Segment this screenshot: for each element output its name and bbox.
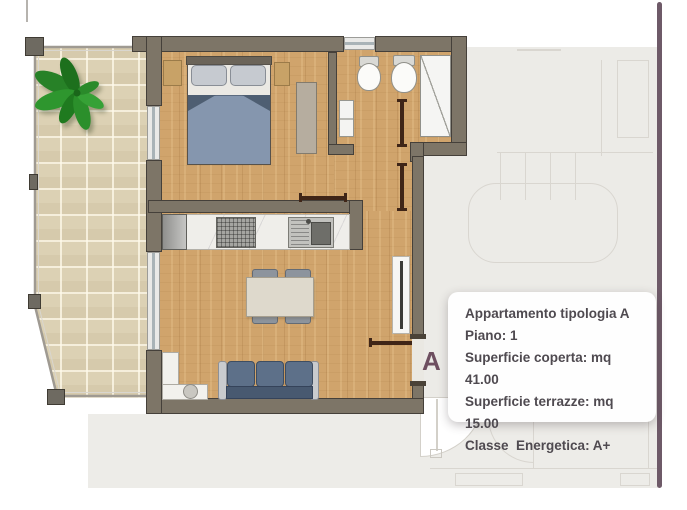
faucet — [306, 219, 311, 224]
sofa — [218, 361, 319, 400]
fixture-bowl — [357, 63, 381, 91]
door-leaf — [371, 341, 412, 345]
wall-segment — [148, 398, 424, 414]
window — [344, 37, 375, 50]
bed-pillow — [191, 65, 227, 86]
fridge — [162, 214, 187, 250]
info-card: Appartamento tipologia A Piano: 1 Superf… — [448, 292, 656, 422]
page-edge-line — [657, 2, 662, 488]
wall-segment — [412, 156, 424, 338]
info-card-line-coperta: Superficie coperta: mq 41.00 — [465, 347, 646, 391]
door-leaf — [400, 165, 404, 210]
info-card-title: Appartamento tipologia A — [465, 303, 646, 325]
sofa-base — [226, 386, 313, 399]
sink-basin — [311, 222, 331, 245]
page-tick-mark — [26, 0, 28, 22]
info-card-line-piano: Piano: 1 — [465, 325, 646, 347]
door-hinge — [344, 193, 347, 202]
wardrobe — [296, 82, 317, 154]
railing-post — [29, 174, 38, 190]
wall-segment — [132, 36, 344, 52]
dining-table — [246, 277, 314, 317]
info-card-line-classe: Classe Energetica: A+ — [465, 435, 646, 457]
window — [147, 252, 160, 350]
door-jamb — [410, 381, 426, 386]
radiator-divider — [340, 118, 353, 120]
wall-segment — [328, 52, 337, 149]
radiator-line — [400, 261, 403, 329]
wall-segment — [146, 36, 162, 106]
bidet-icon — [356, 56, 382, 92]
railing-post — [47, 389, 65, 405]
sink-drainer — [291, 220, 309, 245]
radiator — [339, 100, 354, 137]
sink — [288, 217, 334, 248]
nightstand — [163, 60, 182, 86]
wall-segment — [328, 144, 354, 155]
bed-duvet — [188, 95, 270, 164]
door-hinge — [397, 144, 407, 147]
sofa-cushion — [256, 361, 284, 387]
door-hinge — [397, 208, 407, 211]
door-jamb — [410, 334, 426, 339]
plant-icon — [32, 55, 107, 132]
stove — [216, 217, 256, 248]
door-leaf — [301, 196, 346, 200]
floor-plan-canvas: A Appartamento tipologia A Piano: 1 Supe… — [0, 0, 687, 510]
railing-post — [28, 294, 41, 309]
sofa-cushion — [285, 361, 313, 387]
bed-pillow — [230, 65, 266, 86]
radiator-tall — [392, 256, 410, 334]
shower — [420, 55, 451, 137]
wall-segment — [146, 350, 162, 414]
unit-label-a[interactable]: A — [422, 348, 441, 374]
window — [147, 106, 160, 160]
wall-segment — [349, 200, 363, 250]
sofa-cushion — [227, 361, 255, 387]
door-hinge — [369, 338, 372, 347]
door-leaf — [400, 101, 404, 146]
corner-counter-basin — [183, 384, 198, 399]
wall-segment — [148, 200, 352, 213]
fixture-bowl — [391, 62, 417, 93]
nightstand — [274, 62, 290, 86]
toilet-icon — [390, 55, 418, 94]
door-hinge — [397, 99, 407, 102]
railing-post — [25, 37, 44, 56]
wall-segment — [451, 36, 467, 156]
door-hinge — [299, 193, 302, 202]
info-card-line-terrazze: Superficie terrazze: mq 15.00 — [465, 391, 646, 435]
door-hinge — [397, 163, 407, 166]
